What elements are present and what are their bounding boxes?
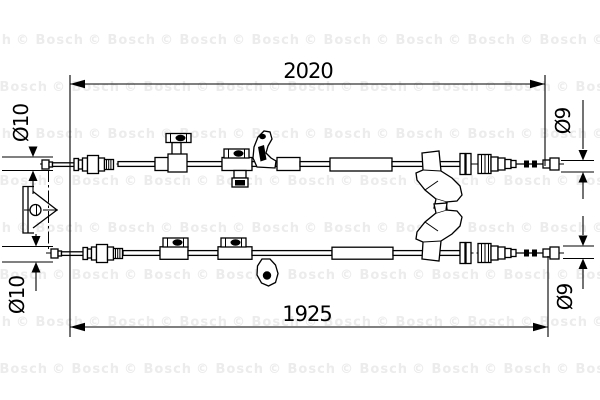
hook-bracket-icon bbox=[257, 259, 278, 286]
bottom-right-diameter-label: Ø9 bbox=[553, 283, 577, 310]
diameter-callout-bottom-right: Ø9 bbox=[553, 216, 594, 310]
cable-clip-icon bbox=[221, 238, 246, 247]
dimension-1925: 1925 bbox=[70, 256, 548, 337]
cable-clip-icon bbox=[166, 134, 191, 173]
diameter-callout-top-left: Ø10 bbox=[2, 104, 53, 194]
top-length-label: 2020 bbox=[283, 59, 332, 83]
top-left-diameter-label: Ø10 bbox=[9, 104, 33, 142]
spring-clip-icon bbox=[253, 131, 276, 168]
technical-drawing-canvas: © Bosch© Bosch© Bosch© Bosch© Bosch© Bos… bbox=[0, 0, 600, 400]
cable-clip-icon bbox=[163, 238, 188, 247]
mounting-bracket-detail bbox=[23, 170, 58, 250]
top-cable-drawing bbox=[40, 131, 564, 209]
diameter-callout-top-right: Ø9 bbox=[551, 100, 594, 199]
bottom-length-label: 1925 bbox=[282, 302, 331, 326]
bottom-cable-drawing bbox=[46, 203, 564, 286]
chassis-bracket-icon bbox=[416, 151, 462, 209]
bottom-left-diameter-label: Ø10 bbox=[5, 276, 29, 314]
brake-cable-diagram: 2020 1925 Ø10 Ø10 bbox=[0, 0, 600, 400]
top-right-diameter-label: Ø9 bbox=[551, 107, 575, 134]
diameter-callout-bottom-left: Ø10 bbox=[2, 234, 53, 314]
dimension-2020: 2020 bbox=[70, 59, 545, 337]
